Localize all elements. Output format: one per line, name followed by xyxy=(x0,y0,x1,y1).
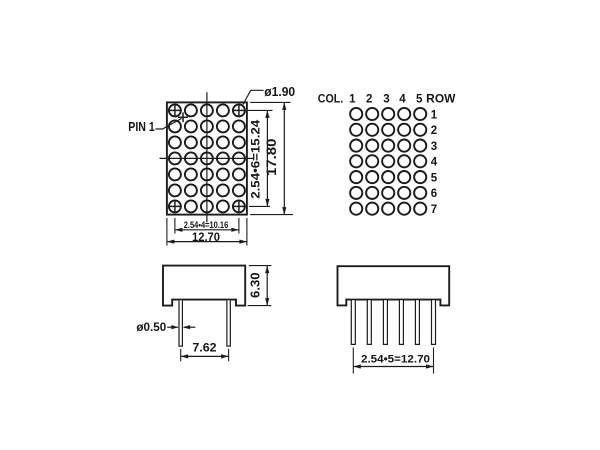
svg-text:2.54•5=12.70: 2.54•5=12.70 xyxy=(361,354,430,366)
svg-text:ROW: ROW xyxy=(426,94,455,106)
svg-text:2: 2 xyxy=(431,125,437,137)
svg-text:3: 3 xyxy=(431,141,437,153)
svg-text:7: 7 xyxy=(431,204,437,216)
svg-text:6: 6 xyxy=(431,188,437,200)
svg-text:7.62: 7.62 xyxy=(192,343,216,355)
svg-text:COL.: COL. xyxy=(318,94,343,106)
svg-text:1: 1 xyxy=(349,94,356,106)
svg-text:4: 4 xyxy=(431,157,438,169)
svg-text:17.80: 17.80 xyxy=(264,139,279,177)
svg-text:ø0.50: ø0.50 xyxy=(136,322,166,334)
svg-text:ø1.90: ø1.90 xyxy=(264,85,295,99)
svg-text:1: 1 xyxy=(431,109,438,121)
svg-text:3: 3 xyxy=(383,94,389,106)
svg-text:5: 5 xyxy=(431,172,438,184)
svg-text:6.30: 6.30 xyxy=(249,272,263,298)
svg-text:PIN 1: PIN 1 xyxy=(128,120,155,134)
svg-text:4: 4 xyxy=(399,94,406,106)
svg-text:2.54•6=15.24: 2.54•6=15.24 xyxy=(250,119,262,199)
svg-text:2: 2 xyxy=(366,94,372,106)
svg-text:5: 5 xyxy=(416,94,423,106)
